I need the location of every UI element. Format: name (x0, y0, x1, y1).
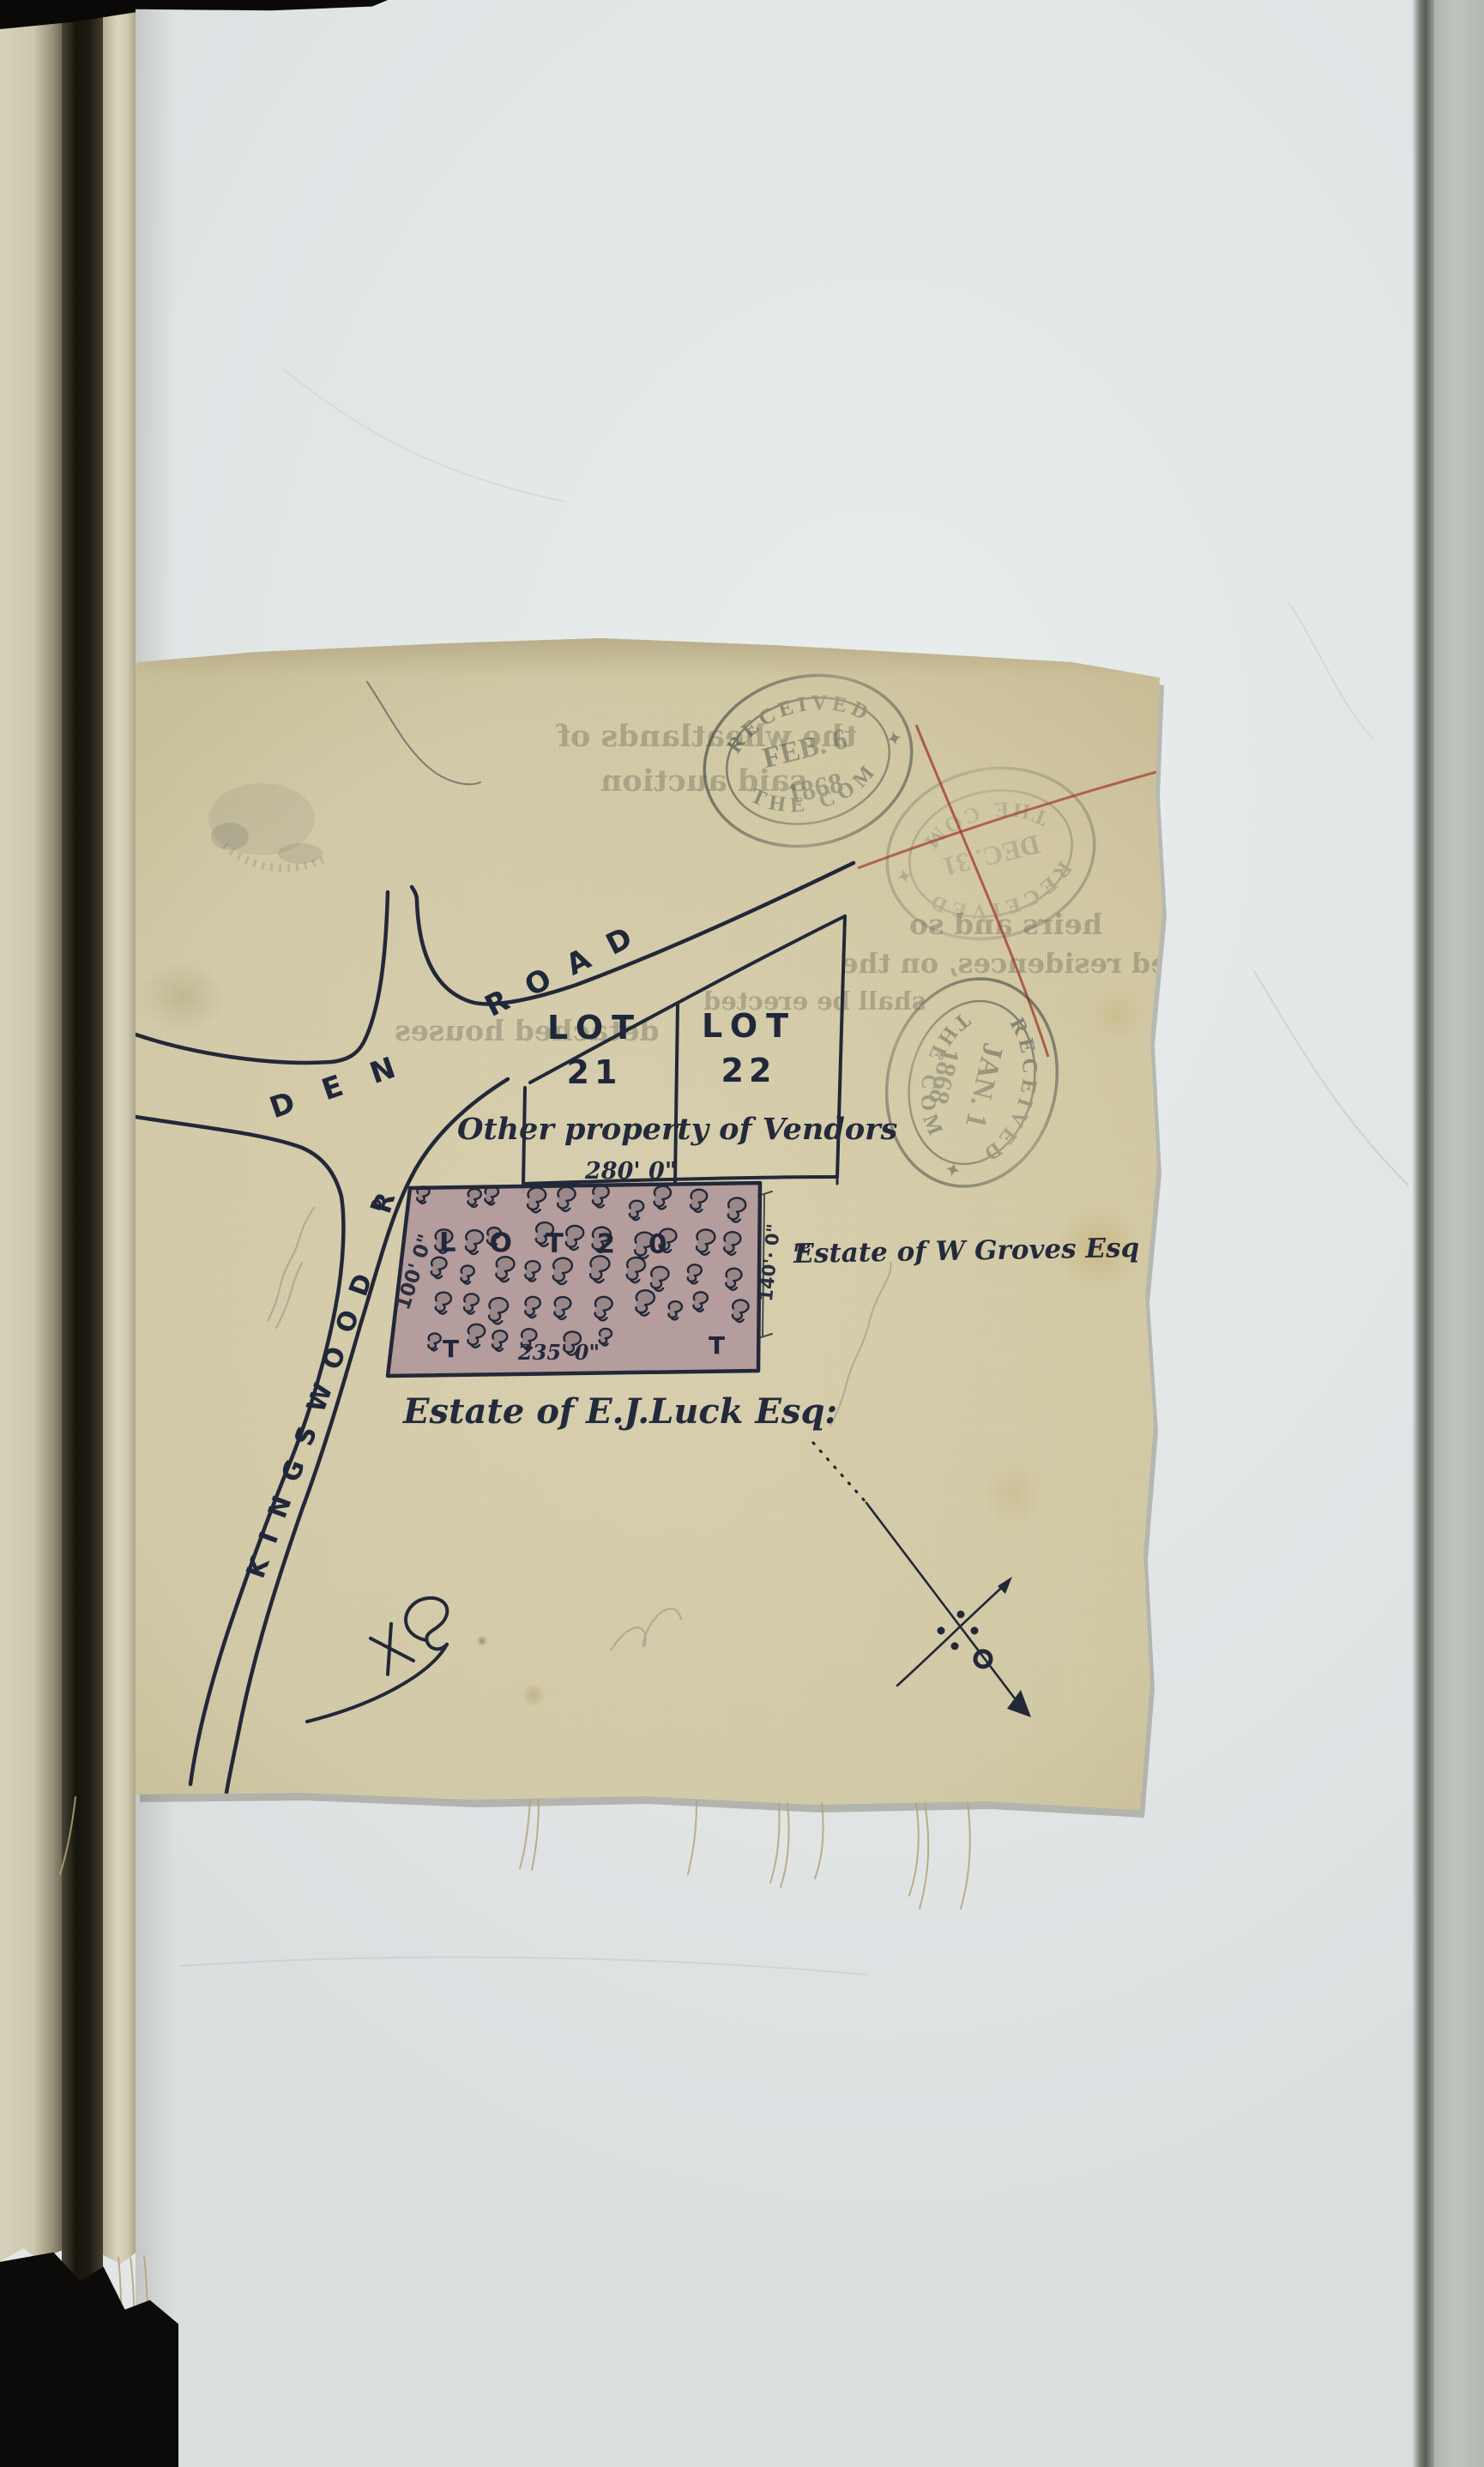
loose-threads (0, 0, 1484, 2467)
backing-page-strip (1434, 0, 1484, 2467)
scanned-album-photo: the wheatlands of said auction heirs and… (0, 0, 1484, 2467)
page-edge-groove (1412, 0, 1434, 2467)
